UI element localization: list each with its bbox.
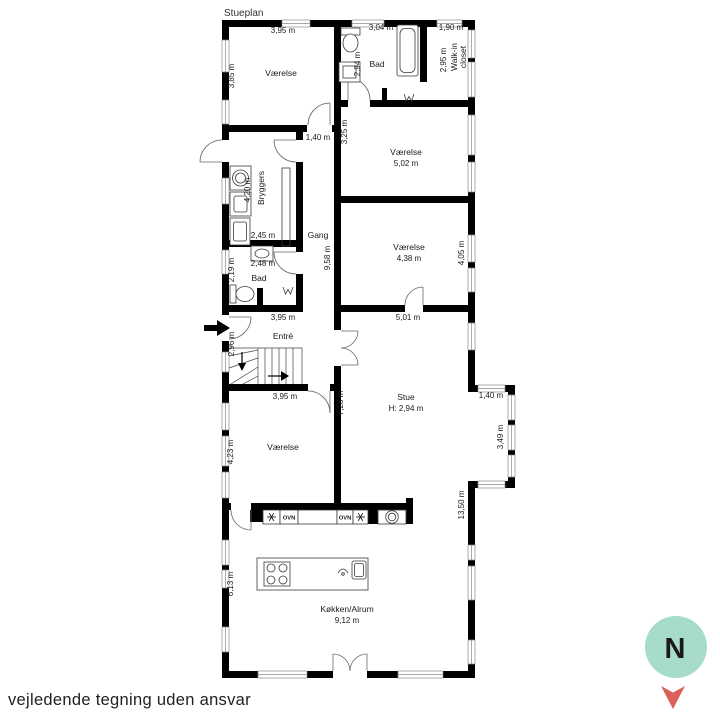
room-label-bad-west: Bad: [251, 273, 266, 283]
dim-vaerelse-nw-height: 3,85 m: [227, 63, 236, 88]
dim-stue-west: 7,28 m: [336, 390, 345, 415]
dim-koekken-size: 9,12 m: [335, 616, 360, 625]
drain-symbol-north: [404, 94, 414, 101]
toilet-north: [341, 28, 360, 52]
dim-walkin-depth: 2,95 m: [439, 47, 448, 72]
dim-bad-west-depth: 2,19 m: [227, 257, 236, 282]
bathtub: [397, 25, 418, 76]
drain-symbol-west: [283, 287, 293, 294]
dim-stairs-width: 3,95 m: [273, 392, 298, 401]
bryggers-counter: [282, 168, 290, 246]
floor-plan-page: Stueplan Værelse 3,95 m 3,85 m Bad 3,04 …: [0, 0, 720, 720]
utility-sink: [230, 218, 250, 245]
room-label-vaerelse-nw: Værelse: [265, 68, 297, 78]
oven-label-1: OVN: [283, 516, 296, 522]
room-label-stue: Stue: [397, 392, 415, 402]
room-label-vaerelse-e: Værelse: [393, 242, 425, 252]
compass-arrow-icon: [661, 686, 685, 709]
island-sink: [352, 561, 366, 579]
kitchen-island: [257, 558, 368, 590]
staircase: [229, 348, 302, 384]
dim-gang-length: 9,58 m: [323, 245, 332, 270]
oven-label-2: OVN: [339, 516, 352, 522]
room-label-entre: Entré: [273, 331, 294, 341]
dim-vaerelse-e-east: 4,05 m: [457, 240, 466, 265]
floor-plan-svg: Stueplan Værelse 3,95 m 3,85 m Bad 3,04 …: [0, 0, 720, 720]
dim-bryggers-length: 4,20 m: [243, 177, 252, 202]
dim-stue-bay-depth: 3,49 m: [496, 424, 505, 449]
dim-hall-door: 1,40 m: [306, 133, 331, 142]
room-label-gang: Gang: [308, 230, 329, 240]
dim-bad-north-height: 2,94 m: [353, 51, 362, 76]
dim-bad-west-south: 3,95 m: [271, 313, 296, 322]
dim-vaerelse-e-size: 4,38 m: [397, 254, 422, 263]
dim-bad-west-width: 2,48 m: [251, 259, 276, 268]
compass-north-letter: N: [665, 633, 686, 665]
room-label-koekken: Køkken/Alrum: [320, 604, 373, 614]
room-label-walkin-line2: closet: [458, 45, 468, 68]
toilet-west: [230, 285, 254, 303]
dim-vaerelse-nw-width: 3,95 m: [271, 26, 296, 35]
room-label-vaerelse-sw: Værelse: [267, 442, 299, 452]
dim-vaerelse-e-south: 5,01 m: [396, 313, 421, 322]
dim-stue-ceiling: H: 2,94 m: [389, 404, 424, 413]
dim-vaerelse-sw-height: 4,23 m: [226, 439, 235, 464]
room-label-vaerelse-n: Værelse: [390, 147, 422, 157]
dim-bryggers-width: 2,45 m: [251, 231, 276, 240]
room-label-bryggers: Bryggers: [256, 171, 266, 205]
dim-bad-north-width: 3,04 m: [369, 23, 394, 32]
round-sink: [378, 510, 406, 524]
dim-koekken-east: 13,50 m: [457, 490, 466, 519]
stair-direction-arrows: [238, 352, 289, 381]
dim-stue-bay-width: 1,40 m: [479, 391, 504, 400]
dim-entre-height: 2,96 m: [227, 331, 236, 356]
dim-vaerelse-n-wall: 3,25 m: [340, 119, 349, 144]
dim-vaerelse-n-size: 5,02 m: [394, 159, 419, 168]
plan-title: Stueplan: [224, 8, 263, 19]
compass: N: [645, 616, 707, 709]
disclaimer-text: vejledende tegning uden ansvar: [8, 691, 251, 709]
dim-walkin-width: 1,90 m: [439, 23, 464, 32]
room-label-bad-north: Bad: [369, 59, 384, 69]
dim-koekken-west: 6,13 m: [226, 571, 235, 596]
